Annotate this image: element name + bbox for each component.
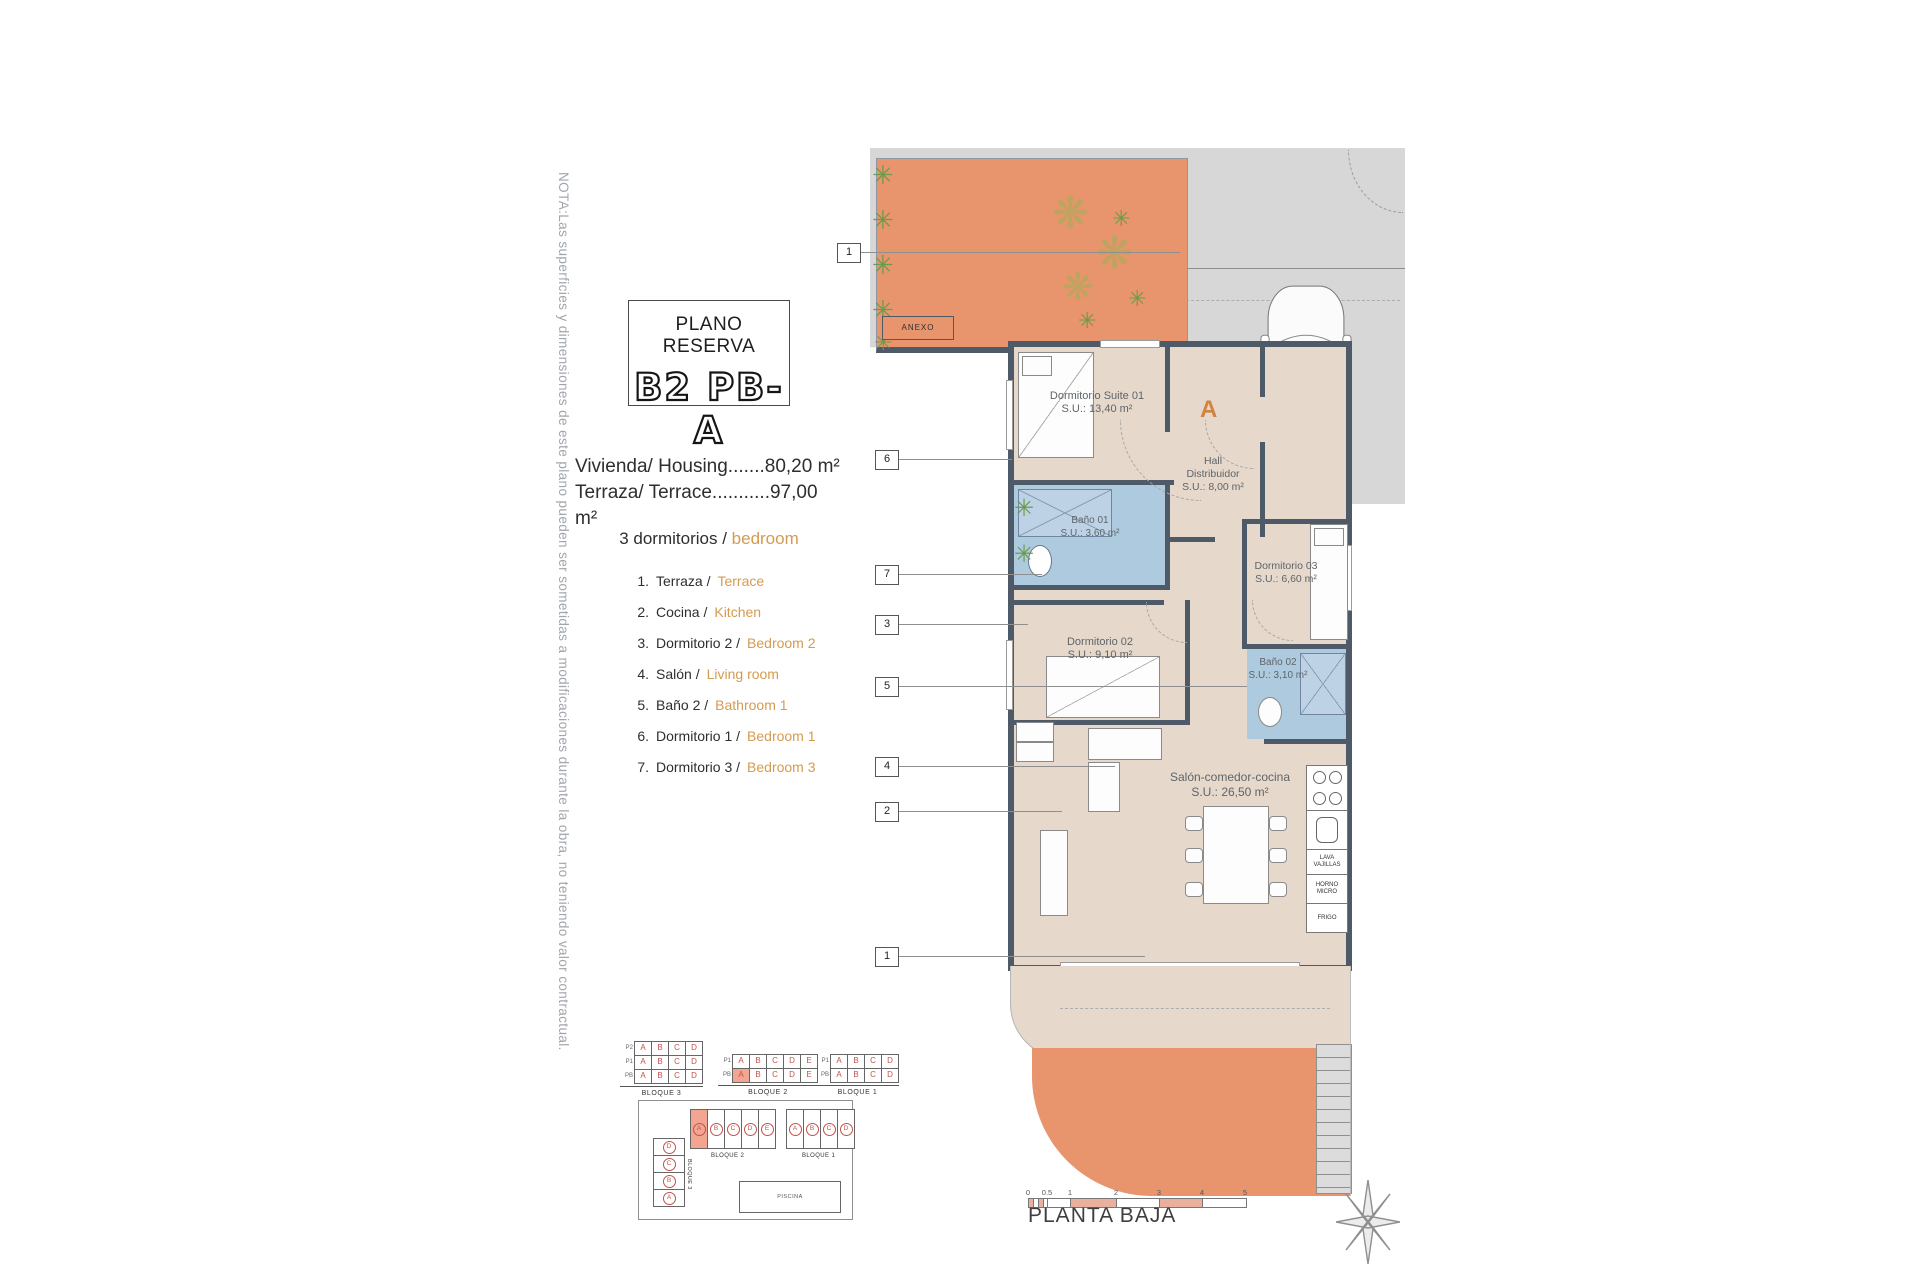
site-unit-highlight: A xyxy=(690,1109,708,1149)
ground-terrace xyxy=(1010,966,1351,1059)
garage-threshold-line xyxy=(1185,268,1405,269)
leader-line xyxy=(897,459,1012,460)
plant-icon: ✳ xyxy=(1014,542,1034,568)
palm-tree-icon: ❋ xyxy=(1096,232,1133,276)
room-legend: 1.Terraza /Terrace 2.Cocina /Kitchen 3.D… xyxy=(633,572,853,789)
plant-icon: ✳ xyxy=(872,162,894,188)
marker-box: 4 xyxy=(875,757,899,777)
room-label-hall: HallDistribuidorS.U.: 8,00 m² xyxy=(1182,455,1244,494)
legend-item: 3.Dormitorio 2 /Bedroom 2 xyxy=(633,634,853,652)
block-label: BLOQUE 1 xyxy=(816,1089,899,1096)
marker-box: 6 xyxy=(875,450,899,470)
leader-line xyxy=(859,252,1180,253)
legend-item: 1.Terraza /Terrace xyxy=(633,572,853,590)
terrace-door xyxy=(1100,340,1160,348)
disclaimer-note: NOTA:Las superficies y dimensiones de es… xyxy=(549,172,571,1082)
title-box: PLANO RESERVA B2 PB-A xyxy=(628,300,790,406)
room-label-bano1: Baño 01S.U.: 3,60 m² xyxy=(1061,514,1120,540)
window xyxy=(1006,380,1013,450)
room-label-bano2: Baño 02S.U.: 3,10 m² xyxy=(1249,656,1308,682)
block-label: BLOQUE 3 xyxy=(620,1090,703,1097)
marker-box: 1 xyxy=(837,243,861,263)
unit-code: B2 PB-A xyxy=(629,366,789,452)
wall xyxy=(1260,347,1265,397)
wall xyxy=(1170,537,1215,542)
dining-table xyxy=(1203,806,1269,904)
plant-icon: ✳ xyxy=(1014,496,1034,522)
fridge-label: FRIGO xyxy=(1306,903,1348,933)
pillow xyxy=(1314,528,1344,546)
legend-item: 4.Salón /Living room xyxy=(633,665,853,683)
leader-line xyxy=(897,624,1028,625)
highlighted-unit-cell: A xyxy=(732,1068,750,1083)
compass-icon xyxy=(1336,1180,1400,1264)
leader-line xyxy=(897,811,1062,812)
floor-label: PLANTA BAJA xyxy=(1028,1204,1176,1228)
tv-bench xyxy=(1040,830,1068,916)
block-table-bloque3: P2ABCD P1ABCD PBABCD BLOQUE 3 xyxy=(620,1042,703,1097)
plant-icon: ✳ xyxy=(872,252,894,278)
wall xyxy=(1165,480,1170,590)
legend-item: 7.Dormitorio 3 /Bedroom 3 xyxy=(633,758,853,776)
room-label-suite: Dormitorio Suite 01S.U.: 13,40 m² xyxy=(1050,390,1144,416)
terrace-area: Terraza/ Terrace...........97,00 m² xyxy=(575,480,843,532)
plant-icon: ✳ xyxy=(1112,206,1130,232)
sink-icon xyxy=(1306,810,1348,850)
chair xyxy=(1269,882,1287,897)
marker-box: 3 xyxy=(875,615,899,635)
marker-box: 2 xyxy=(875,802,899,822)
plant-icon: ✳ xyxy=(872,207,894,233)
siteplan-bloque2-label: BLOQUE 2 xyxy=(711,1153,744,1159)
wall xyxy=(1264,739,1346,744)
siteplan-bloque2: A B C D E xyxy=(691,1109,776,1149)
side-steps xyxy=(1316,1044,1352,1194)
siteplan-bloque3-label: BLOQUE 3 xyxy=(686,1159,692,1190)
bedrooms-es: 3 dormitorios / xyxy=(619,529,727,548)
chair xyxy=(1185,848,1203,863)
marker-box: 7 xyxy=(875,565,899,585)
kitchen-counter: LAVAVAJILLAS HORNOMICRO FRIGO xyxy=(1306,766,1348,933)
sofa xyxy=(1088,762,1120,812)
room-label-salon: Salón-comedor-cocinaS.U.: 26,50 m² xyxy=(1170,770,1290,800)
palm-tree-icon: ❋ xyxy=(1062,266,1094,310)
toilet-icon xyxy=(1258,697,1282,727)
bed xyxy=(1046,656,1160,718)
room-label-dorm3: Dormitorio 03S.U.: 6,60 m² xyxy=(1254,560,1317,586)
room-label-dorm2: Dormitorio 02S.U.: 9,10 m² xyxy=(1067,636,1133,662)
leader-line xyxy=(897,956,1145,957)
terrace-dashed-line xyxy=(1060,1008,1330,1009)
entrance-letter: A xyxy=(1200,396,1217,424)
marker-box: 1 xyxy=(875,947,899,967)
plant-icon: ✳ xyxy=(1078,308,1096,334)
chair xyxy=(1185,816,1203,831)
block-table-bloque1: P1ABCD PBABCD BLOQUE 1 xyxy=(816,1055,899,1096)
bedrooms-line: 3 dormitorios / bedroom xyxy=(575,529,843,549)
leader-line xyxy=(897,686,1247,687)
annex-label: ANEXO xyxy=(882,316,954,340)
siteplan-bloque1-label: BLOQUE 1 xyxy=(802,1153,835,1159)
block-label: BLOQUE 2 xyxy=(718,1089,818,1096)
leader-line xyxy=(897,574,1042,575)
stove-icon xyxy=(1306,765,1348,811)
window xyxy=(1006,640,1013,710)
pool: PISCINA xyxy=(739,1181,841,1213)
chair xyxy=(1269,816,1287,831)
block-table-bloque2: P1ABCDE PBABCDE BLOQUE 2 xyxy=(718,1055,818,1096)
wall xyxy=(1242,519,1247,649)
plan-title: PLANO RESERVA xyxy=(629,314,789,358)
siteplan-bloque1: A B C D xyxy=(787,1109,855,1149)
plant-icon: ✳ xyxy=(1128,286,1146,312)
plot-edge-line xyxy=(1350,966,1351,1196)
surface-areas: Vivienda/ Housing.......80,20 m² Terraza… xyxy=(575,454,843,532)
dishwasher-label: LAVAVAJILLAS xyxy=(1306,849,1348,875)
site-plan: A B C D E BLOQUE 2 A B C D BLOQUE 1 D C … xyxy=(638,1100,853,1220)
housing-area: Vivienda/ Housing.......80,20 m² xyxy=(575,454,843,480)
palm-tree-icon: ❋ xyxy=(1052,192,1089,236)
chair xyxy=(1269,848,1287,863)
utility-box xyxy=(1016,742,1054,762)
leader-line xyxy=(897,766,1115,767)
oven-micro-label: HORNOMICRO xyxy=(1306,874,1348,904)
pillow xyxy=(1022,356,1052,376)
marker-box: 5 xyxy=(875,677,899,697)
wall xyxy=(1014,600,1164,605)
sofa xyxy=(1088,728,1162,760)
floor-plan-page: NOTA:Las superficies y dimensiones de es… xyxy=(0,0,1920,1280)
legend-item: 5.Baño 2 /Bathroom 1 xyxy=(633,696,853,714)
utility-box xyxy=(1016,722,1054,742)
garden-zone xyxy=(1032,1048,1350,1196)
legend-item: 2.Cocina /Kitchen xyxy=(633,603,853,621)
siteplan-bloque3: D C B A xyxy=(653,1139,685,1207)
legend-item: 6.Dormitorio 1 /Bedroom 1 xyxy=(633,727,853,745)
wall xyxy=(1014,585,1170,590)
chair xyxy=(1185,882,1203,897)
bedrooms-en: bedroom xyxy=(732,529,799,548)
